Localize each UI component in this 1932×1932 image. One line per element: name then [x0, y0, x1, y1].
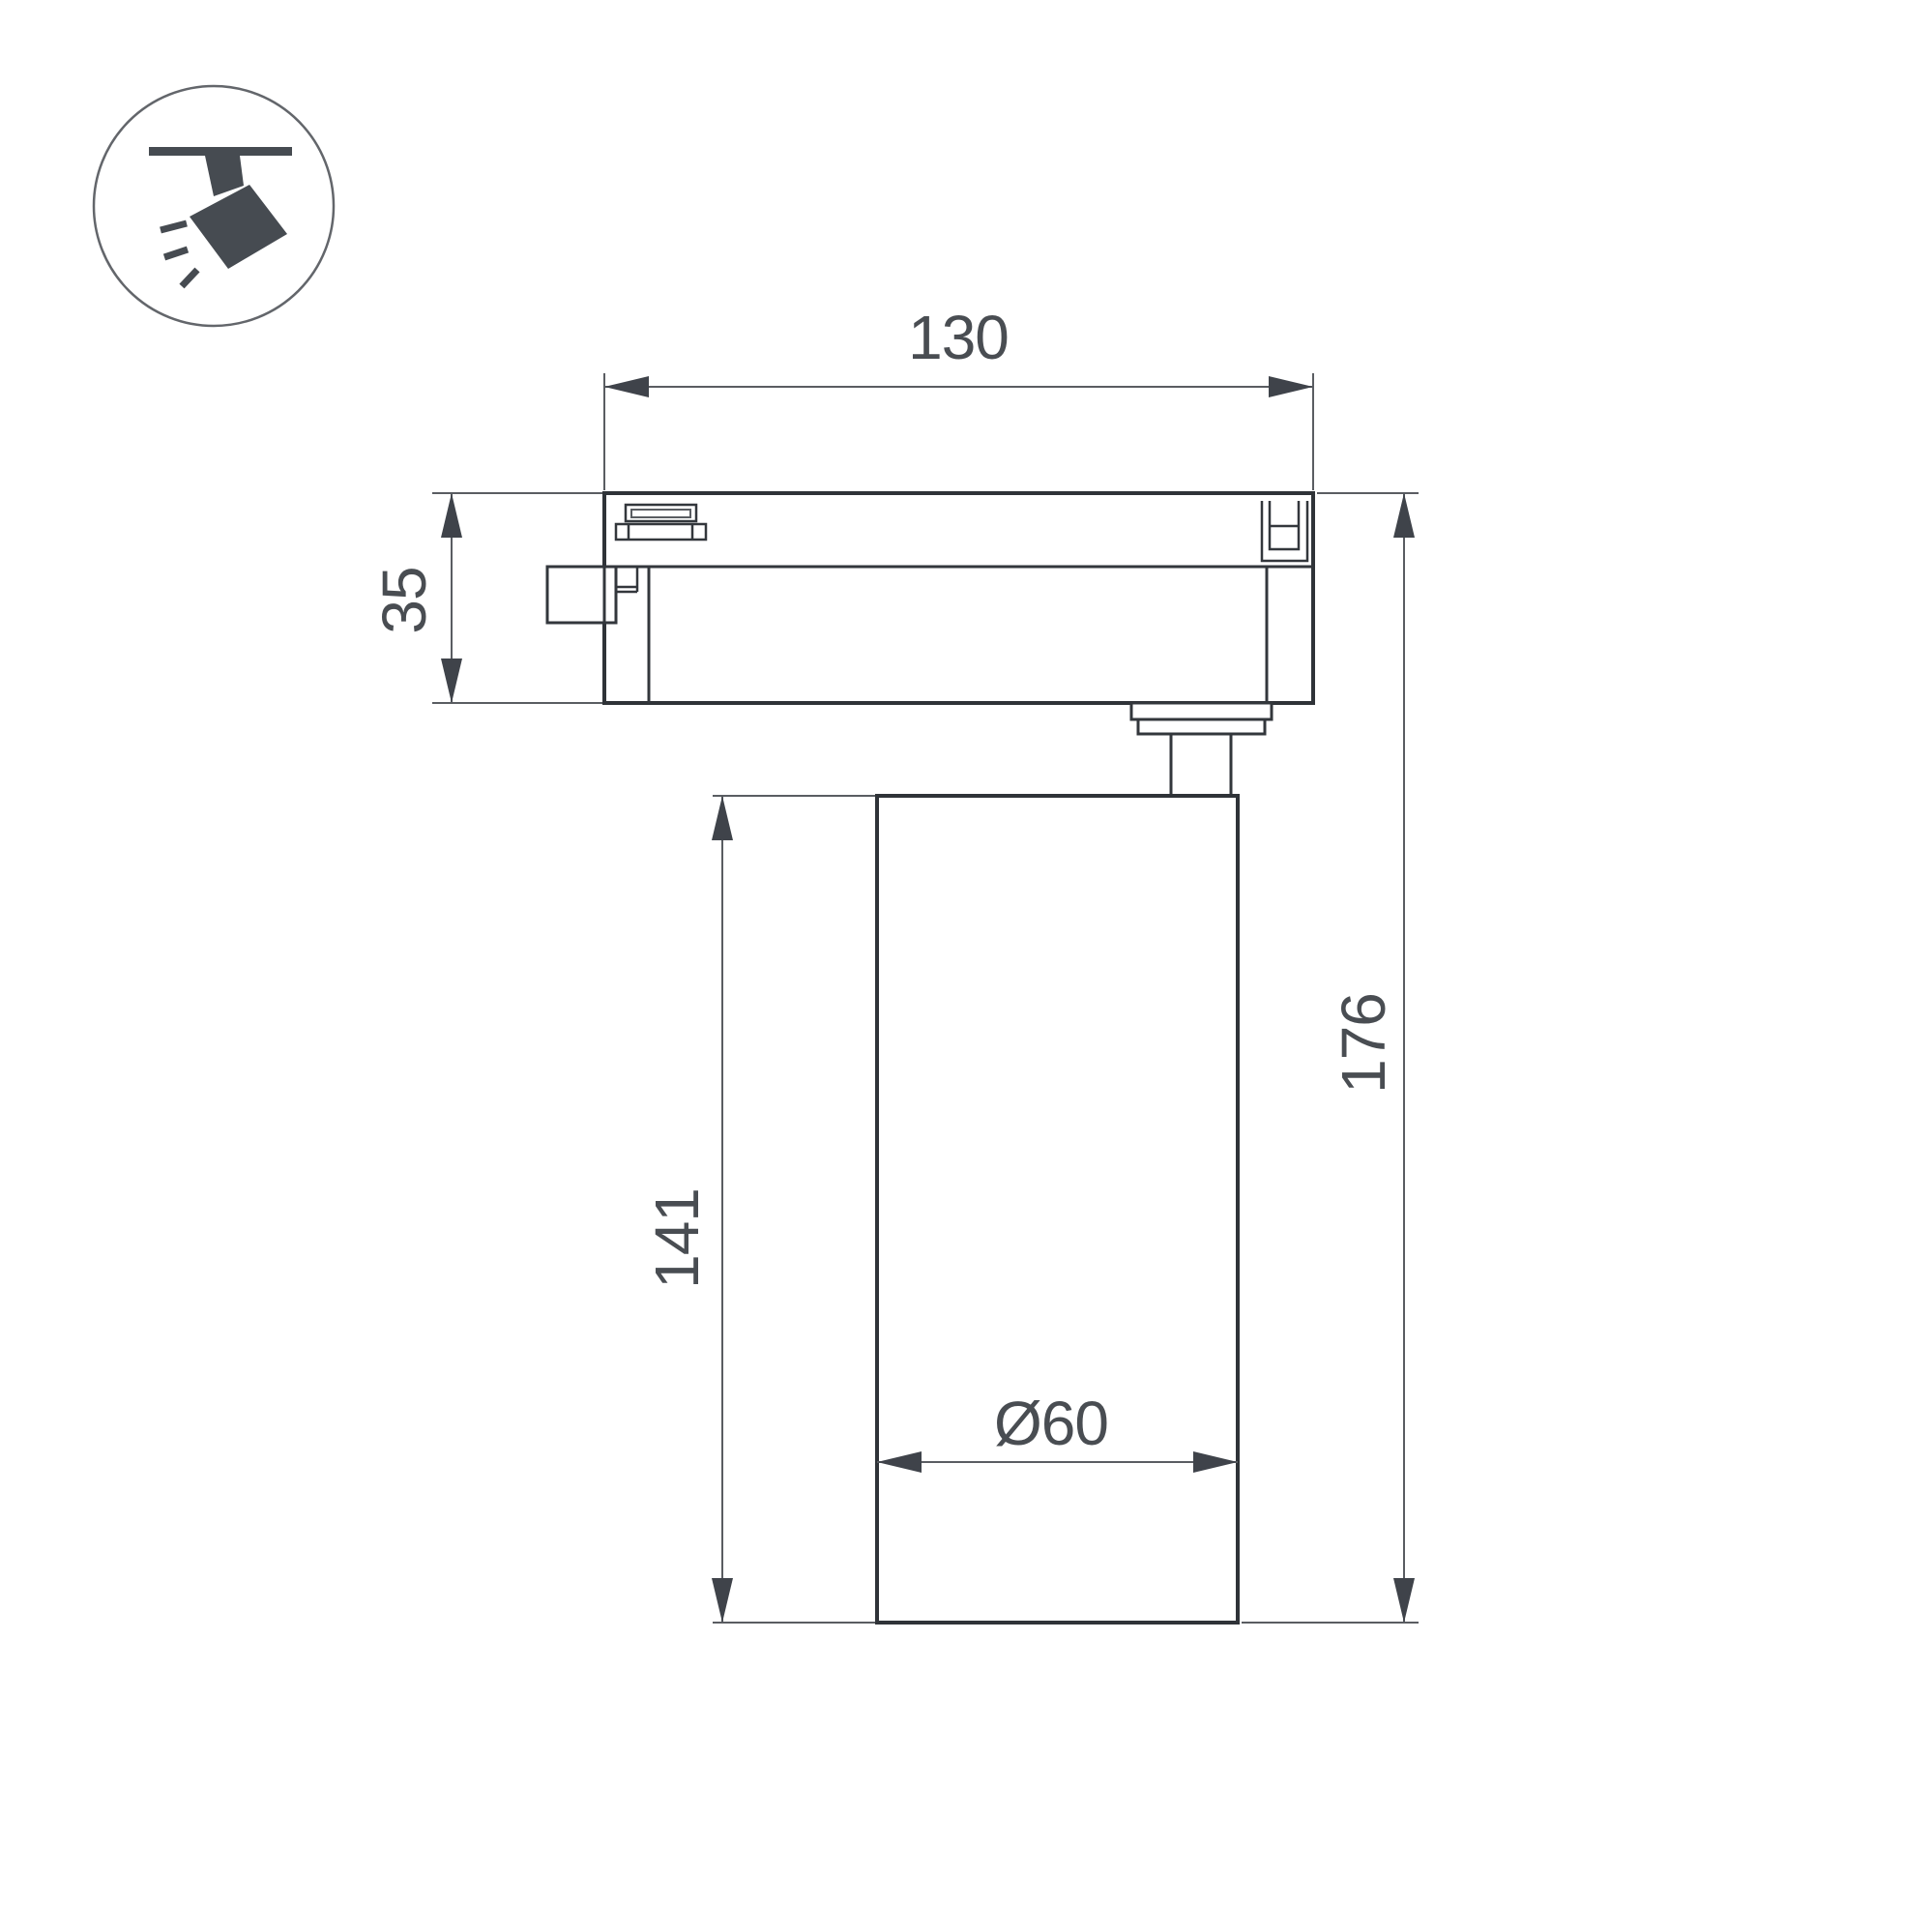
- swivel-joint: [1131, 703, 1272, 796]
- track-spotlight-icon: [94, 86, 334, 326]
- dim-label-176: 176: [1329, 993, 1398, 1094]
- joint-stem: [1171, 734, 1231, 796]
- arrowhead-130-right: [1269, 376, 1313, 397]
- lamp-body: [877, 796, 1238, 1623]
- joint-flange-upper: [1131, 703, 1272, 719]
- track-adapter: [547, 493, 1313, 703]
- joint-flange-lower: [1138, 719, 1265, 734]
- arrowhead-35-bottom: [441, 659, 462, 703]
- dim-label-141: 141: [642, 1188, 712, 1289]
- dim-label-130: 130: [908, 303, 1009, 372]
- icon-track-bar: [149, 147, 292, 156]
- arrowhead-141-top: [712, 796, 733, 840]
- drawing-canvas: 130 35 141 176 Ø60: [0, 0, 1932, 1932]
- arrowhead-141-bottom: [712, 1578, 733, 1623]
- arrowhead-130-left: [604, 376, 649, 397]
- arrowhead-176-bottom: [1393, 1578, 1415, 1623]
- dimension-body-length: 141: [642, 796, 875, 1623]
- arrowhead-176-top: [1393, 493, 1415, 538]
- dim-label-60: Ø60: [994, 1389, 1108, 1458]
- arrowhead-35-top: [441, 493, 462, 538]
- dimension-adapter-length: 130: [604, 303, 1313, 490]
- adapter-outline: [604, 493, 1313, 703]
- dim-label-35: 35: [369, 567, 439, 633]
